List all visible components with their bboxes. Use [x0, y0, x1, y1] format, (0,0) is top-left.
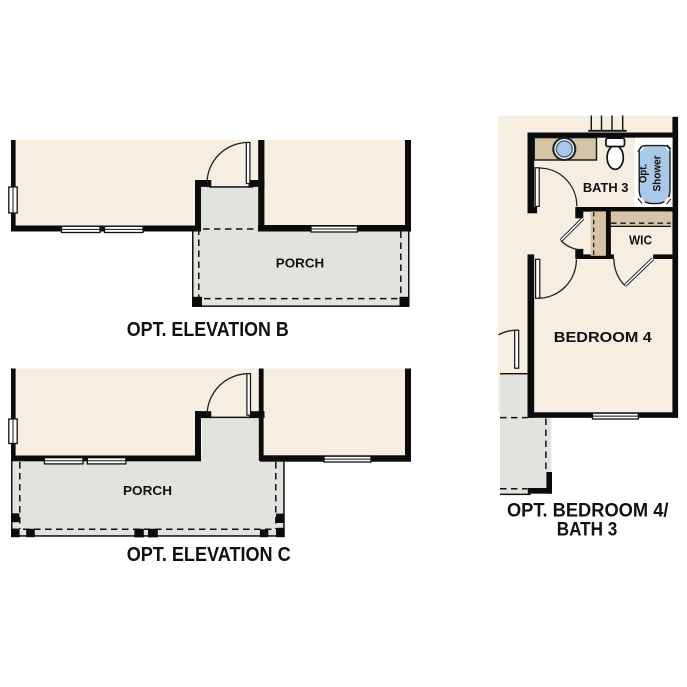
svg-text:OPT. ELEVATION C: OPT. ELEVATION C	[127, 544, 291, 566]
svg-text:BATH 3: BATH 3	[583, 180, 629, 195]
svg-text:WIC: WIC	[629, 232, 653, 247]
svg-text:BEDROOM 4: BEDROOM 4	[554, 330, 653, 346]
svg-text:PORCH: PORCH	[276, 256, 325, 270]
svg-text:OPT. BEDROOM 4/: OPT. BEDROOM 4/	[507, 500, 669, 521]
svg-text:PORCH: PORCH	[123, 484, 172, 498]
svg-text:BATH 3: BATH 3	[557, 519, 618, 540]
svg-text:OPT. ELEVATION B: OPT. ELEVATION B	[127, 319, 289, 341]
